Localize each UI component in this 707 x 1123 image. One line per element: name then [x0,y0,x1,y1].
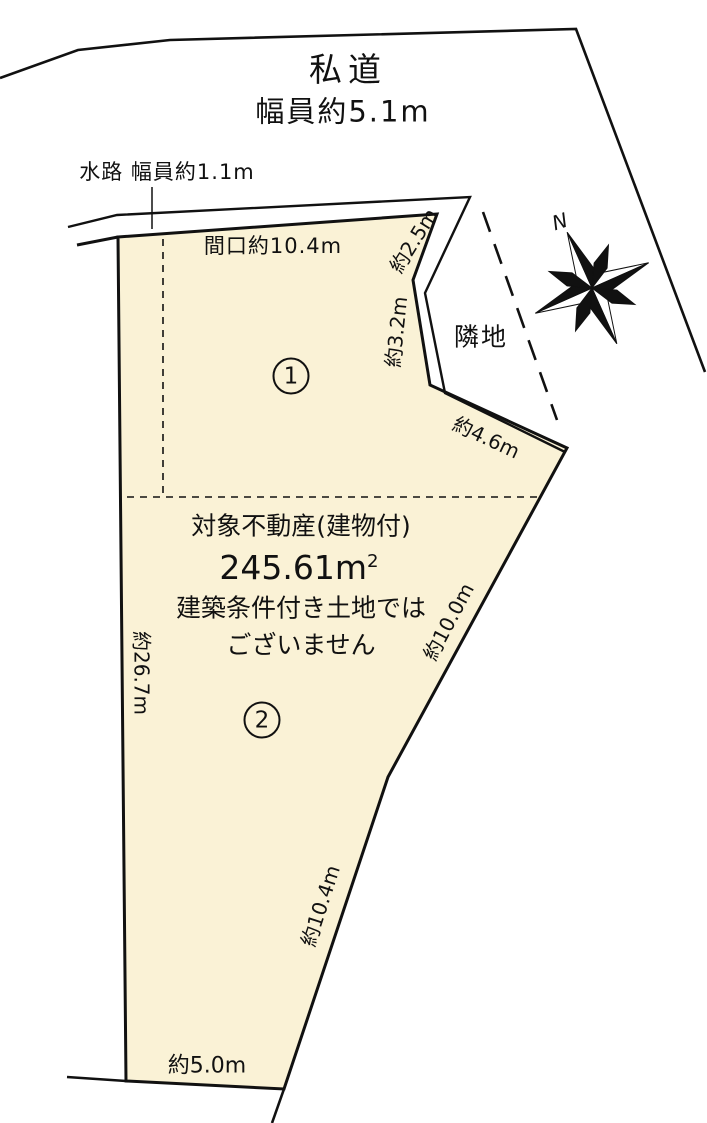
waterway-label: 水路 幅員約1.1m [79,160,255,184]
property-title: 対象不動産(建物付) [191,513,411,542]
property-note-line2: ございません [226,632,375,661]
waterway-lower-line [77,237,118,245]
road-width-label: 幅員約5.1m [255,95,430,128]
zone-2-badge: 2 [244,702,281,739]
adjacent-land-dashed-boundary [483,212,557,420]
adjacent-land-label: 隣地 [454,324,508,353]
zone-2-number: 2 [255,707,270,733]
frontage-label: 間口約10.4m [204,234,342,258]
property-area-sup: 2 [367,551,379,572]
property-area: 245.61m2 [219,549,378,587]
edge-label-26-7m: 約26.7m [130,631,153,715]
outer-boundary-bottom-left [67,1077,126,1081]
property-area-value: 245.61m [219,548,367,587]
edge-label-5-0m: 約5.0m [168,1053,246,1078]
zone-1-number: 1 [284,363,299,389]
boundary-continuation-bottom-right [272,1089,284,1123]
zone-1-badge: 1 [273,358,310,395]
property-note-line1: 建築条件付き土地では [176,595,426,624]
compass-rose-icon [511,207,674,369]
road-title: 私道 [309,51,387,89]
land-plot-diagram: 私道 幅員約5.1m 水路 幅員約1.1m 間口約10.4m 約2.5m 約3.… [0,0,707,1123]
